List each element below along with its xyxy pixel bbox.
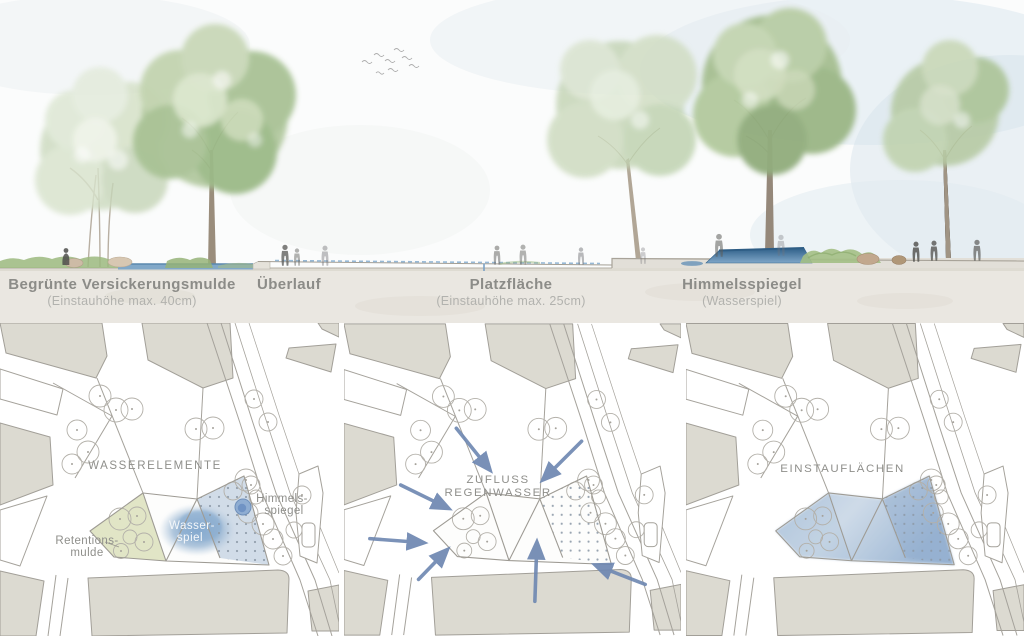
overflow-curb [253,262,270,270]
heading-wasserelemente: WASSERELEMENTE [88,460,222,472]
label-wasserspiel-1: Wasser- [169,520,215,532]
plan-panel-einstau: EINSTAUFLÄCHEN [686,323,1024,636]
label-himmelsspiegel-2: spiegel [264,505,303,517]
plan-labels: ZUFLUSS REGENWASSER [444,474,551,499]
label-wasserspiel-2: spiel [177,532,203,544]
inflow-arrow [456,428,489,469]
inflow-arrow [401,485,448,508]
plan-panel-zufluss: ZUFLUSS REGENWASSER [344,323,681,636]
section-rendering: Begrünte Versickerungsmulde (Einstauhöhe… [0,0,1024,323]
inflow-arrow [370,539,423,543]
heading-zufluss-1: ZUFLUSS [466,474,529,486]
label-himmelsspiegel-1: Himmels- [256,493,308,505]
label-retention-1: Retentions- [55,535,118,547]
waterconcept-poster: Begrünte Versickerungsmulde (Einstauhöhe… [0,0,1024,636]
himmelsspiegel-marker [235,499,251,515]
inflow-arrow [419,551,447,580]
label-retention-2: mulde [70,547,103,559]
heading-einstau: EINSTAUFLÄCHEN [780,463,905,475]
heading-zufluss-2: REGENWASSER [444,487,551,499]
plan-panel-wasserelemente: WASSERELEMENTE Retentions- mulde Wasser-… [0,323,339,636]
plan-labels: EINSTAUFLÄCHEN [780,463,905,475]
inflow-arrow [544,441,582,479]
section-scene [0,0,1024,323]
plan-diagrams-row: WASSERELEMENTE Retentions- mulde Wasser-… [0,323,1024,636]
inflow-arrow [535,544,537,602]
